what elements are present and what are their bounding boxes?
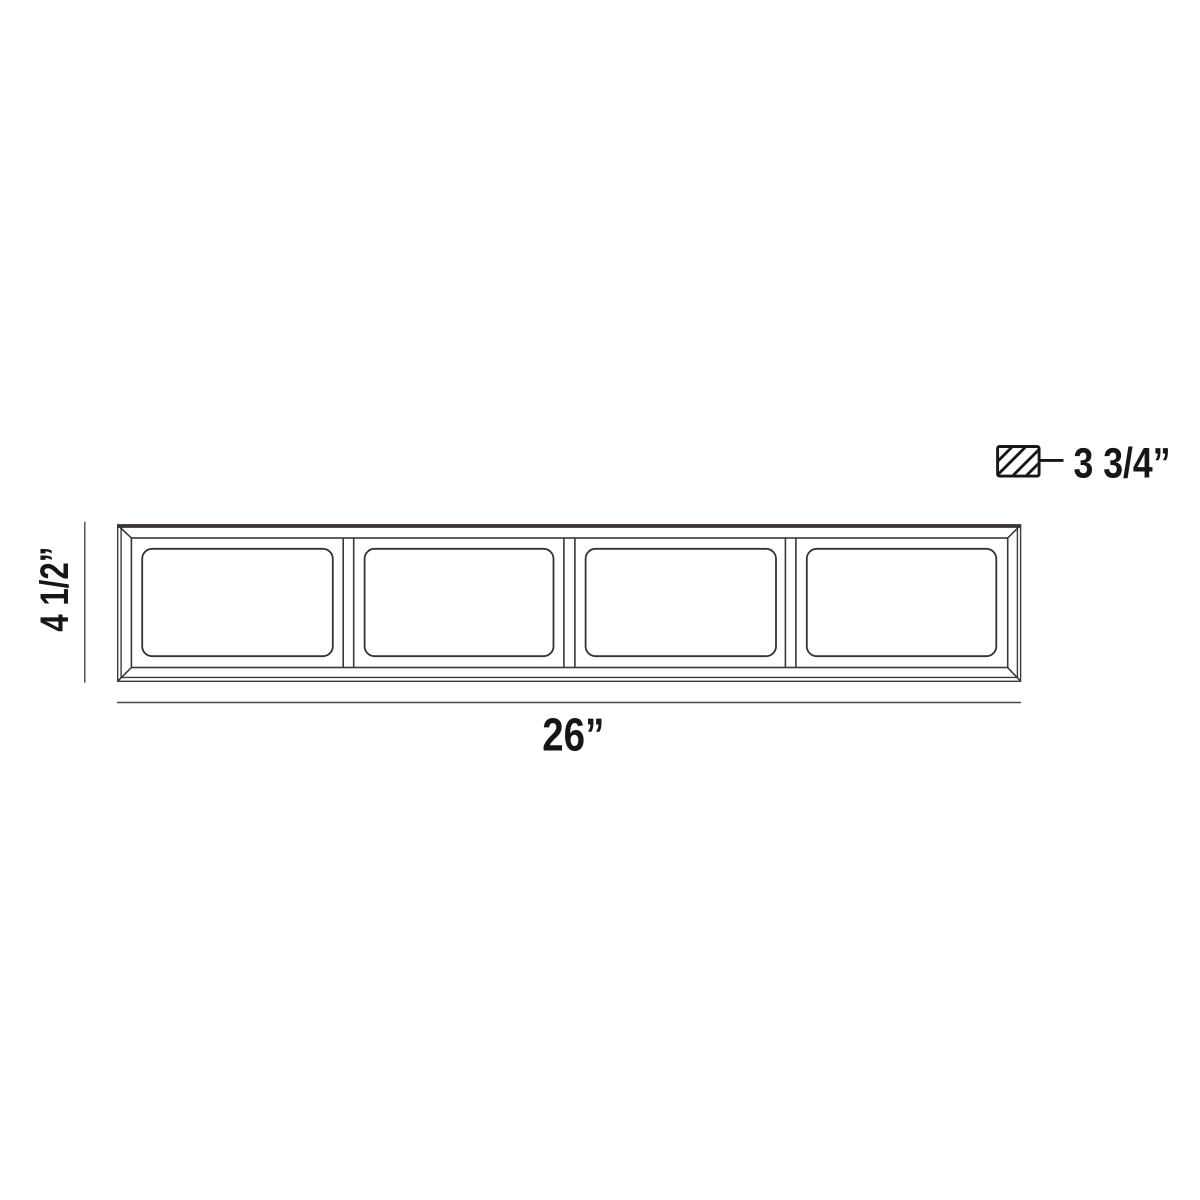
- svg-text:3 3/4”: 3 3/4”: [1074, 440, 1171, 487]
- svg-text:26”: 26”: [542, 709, 604, 761]
- svg-text:4 1/2”: 4 1/2”: [33, 547, 77, 632]
